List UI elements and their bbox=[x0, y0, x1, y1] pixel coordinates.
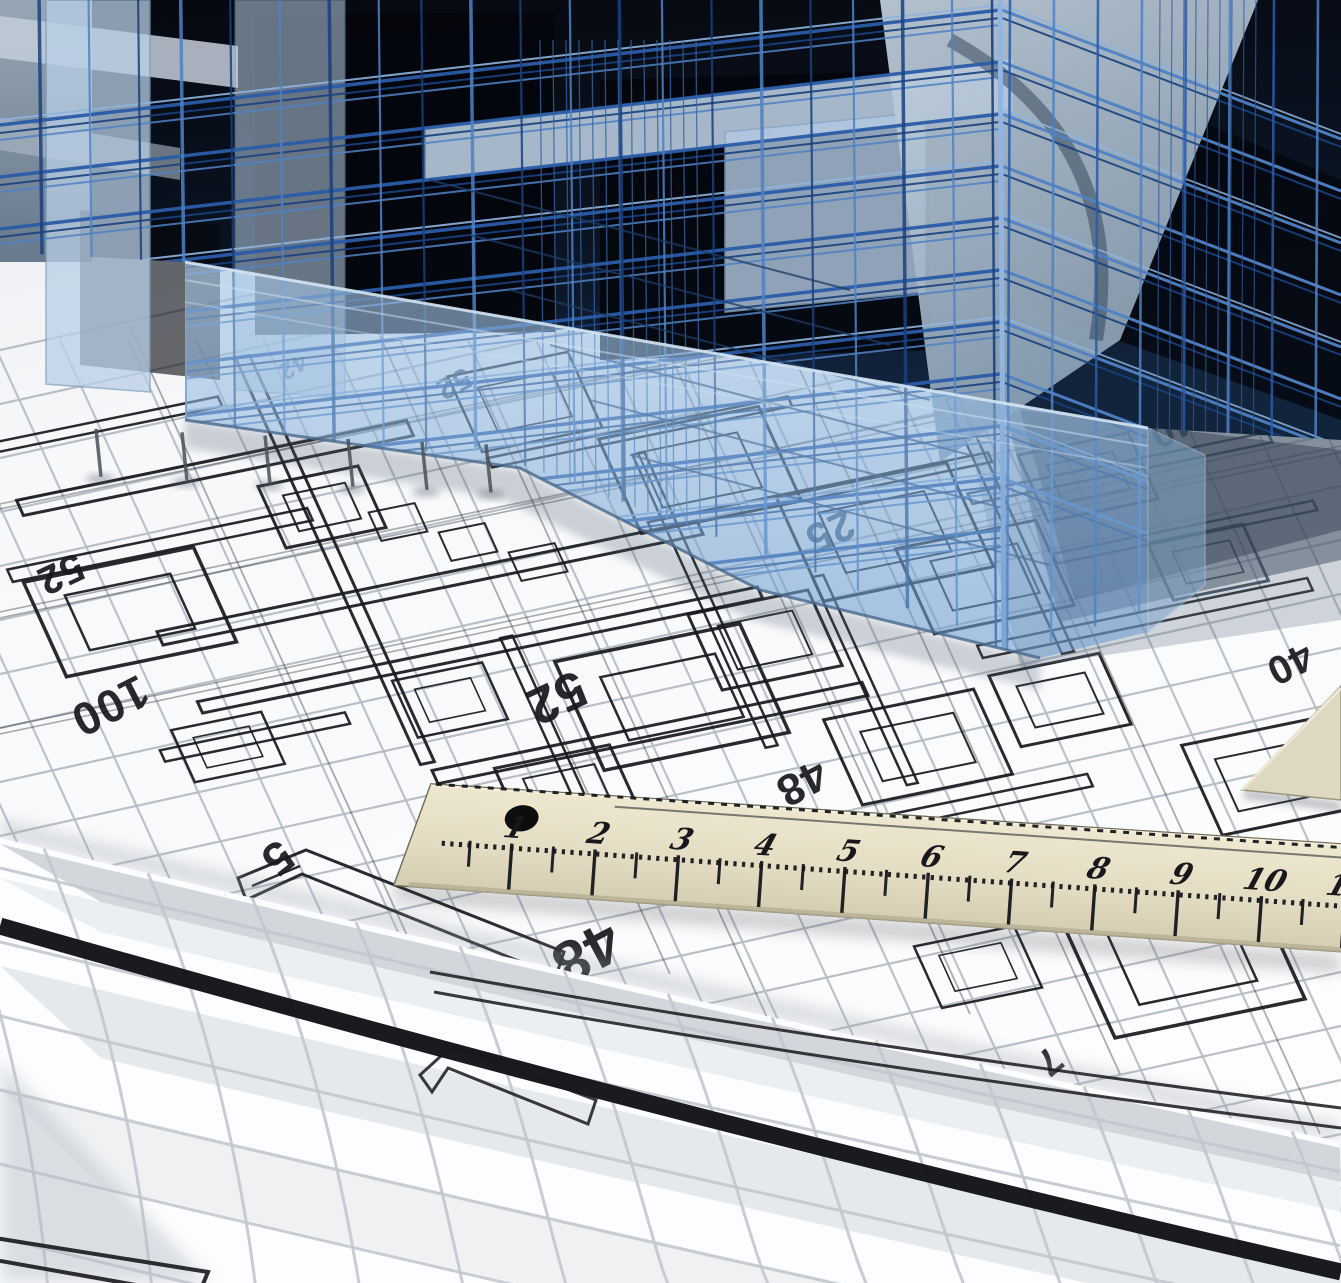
pillar-shadow bbox=[338, 485, 366, 493]
ruler-dot-tick bbox=[750, 862, 754, 867]
ruler-dot-tick bbox=[673, 857, 677, 862]
ruler-half-tick bbox=[552, 847, 554, 873]
ruler-half-tick bbox=[1301, 899, 1303, 925]
ruler-half-tick bbox=[1051, 882, 1053, 908]
ruler-half-tick bbox=[718, 858, 720, 884]
architectural-render-scene: 52100524840485740254252 1234567891011 bbox=[0, 0, 1341, 1283]
ruler-dot-tick bbox=[853, 870, 857, 875]
ruler-dot-tick bbox=[922, 874, 926, 879]
ruler-dot-tick bbox=[484, 844, 488, 849]
ruler-dot-tick bbox=[519, 846, 523, 851]
ruler-dot-tick bbox=[1308, 901, 1312, 906]
pillar-shadow bbox=[86, 475, 114, 483]
ruler-dot-tick bbox=[699, 859, 703, 864]
ruler-dot-tick bbox=[1025, 882, 1029, 887]
ruler-dot-tick bbox=[931, 875, 935, 880]
ruler-dot-tick bbox=[1334, 903, 1338, 908]
ruler-dot-tick bbox=[1076, 885, 1080, 890]
ruler-dot-tick bbox=[536, 847, 540, 852]
ruler-dot-tick bbox=[973, 878, 977, 883]
ruler-dot-tick bbox=[1119, 888, 1123, 893]
pillar-shadow bbox=[412, 488, 440, 496]
ruler-half-tick bbox=[968, 876, 970, 902]
ruler-half-tick bbox=[802, 864, 804, 890]
ruler-dot-tick bbox=[1128, 889, 1132, 894]
ruler-dot-tick bbox=[639, 855, 643, 860]
ruler-dot-tick bbox=[896, 873, 900, 878]
ruler-dot-tick bbox=[768, 864, 772, 869]
ruler-dot-tick bbox=[1265, 898, 1269, 903]
ruler-dot-tick bbox=[870, 871, 874, 876]
ruler-dot-tick bbox=[1196, 894, 1200, 899]
ruler-dot-tick bbox=[1248, 897, 1252, 902]
ruler-dot-tick bbox=[785, 865, 789, 870]
ruler-dot-tick bbox=[836, 868, 840, 873]
ruler-dot-tick bbox=[502, 845, 506, 850]
ruler-half-tick bbox=[1218, 893, 1220, 919]
ruler-dot-tick bbox=[1068, 885, 1072, 890]
ruler-dot-tick bbox=[605, 852, 609, 857]
ruler-dot-tick bbox=[733, 861, 737, 866]
ruler-dot-tick bbox=[476, 843, 480, 848]
ruler-half-tick bbox=[885, 870, 887, 896]
ruler-dot-tick bbox=[544, 848, 548, 853]
ruler-dot-tick bbox=[862, 870, 866, 875]
ruler-dot-tick bbox=[613, 853, 617, 858]
ruler-dot-tick bbox=[622, 853, 626, 858]
ruler-dot-tick bbox=[1231, 896, 1235, 901]
ruler-dot-tick bbox=[1102, 887, 1106, 892]
ruler-dot-tick bbox=[1188, 893, 1192, 898]
ruler-dot-tick bbox=[888, 872, 892, 877]
ruler-dot-tick bbox=[742, 862, 746, 867]
blueprint-scene-svg: 52100524840485740254252 1234567891011 bbox=[0, 0, 1341, 1283]
ruler-dot-tick bbox=[965, 877, 969, 882]
ruler-dot-tick bbox=[725, 861, 729, 866]
ruler-dot-tick bbox=[956, 877, 960, 882]
ruler-dot-tick bbox=[656, 856, 660, 861]
ruler-dot-tick bbox=[793, 865, 797, 870]
ruler-dot-tick bbox=[1274, 899, 1278, 904]
ruler-dot-tick bbox=[570, 850, 574, 855]
ruler-dot-tick bbox=[1171, 892, 1175, 897]
ruler-dot-tick bbox=[1016, 881, 1020, 886]
ruler-dot-tick bbox=[690, 858, 694, 863]
ruler-dot-tick bbox=[527, 847, 531, 852]
ruler-dot-tick bbox=[579, 850, 583, 855]
ruler-dot-tick bbox=[879, 871, 883, 876]
ruler-dot-tick bbox=[1214, 895, 1218, 900]
ruler-dot-tick bbox=[828, 868, 832, 873]
pillar-shadow bbox=[255, 482, 283, 490]
ruler-dot-tick bbox=[1222, 895, 1226, 900]
ruler-dot-tick bbox=[1162, 891, 1166, 896]
ruler-dot-tick bbox=[1282, 900, 1286, 905]
ruler-dot-tick bbox=[999, 880, 1003, 885]
ruler-dot-tick bbox=[913, 874, 917, 879]
ruler-dot-tick bbox=[1111, 888, 1115, 893]
ruler-dot-tick bbox=[939, 876, 943, 881]
ruler-dot-tick bbox=[1145, 890, 1149, 895]
ruler-dot-tick bbox=[1291, 900, 1295, 905]
ruler-dot-tick bbox=[442, 841, 446, 846]
ruler-half-tick bbox=[635, 852, 637, 878]
ruler-dot-tick bbox=[1154, 891, 1158, 896]
ruler-dot-tick bbox=[630, 854, 634, 859]
ruler-dot-tick bbox=[459, 842, 463, 847]
ruler-dot-tick bbox=[982, 879, 986, 884]
ruler-dot-tick bbox=[810, 867, 814, 872]
pillar-shadow bbox=[172, 478, 200, 486]
glass-panel bbox=[46, 0, 150, 392]
ruler-dot-tick bbox=[776, 864, 780, 869]
ruler-dot-tick bbox=[991, 879, 995, 884]
ruler-dot-tick bbox=[1325, 903, 1329, 908]
ruler-dot-tick bbox=[647, 855, 651, 860]
ruler-dot-tick bbox=[1042, 883, 1046, 888]
ruler-dot-tick bbox=[819, 867, 823, 872]
ruler-dot-tick bbox=[493, 844, 497, 849]
ruler-dot-tick bbox=[682, 858, 686, 863]
ruler-dot-tick bbox=[1085, 886, 1089, 891]
ruler-half-tick bbox=[1135, 887, 1137, 913]
ruler-dot-tick bbox=[587, 851, 591, 856]
ruler-dot-tick bbox=[1205, 894, 1209, 899]
ruler-dot-tick bbox=[1239, 897, 1243, 902]
ruler-dot-tick bbox=[1059, 884, 1063, 889]
ruler-dot-tick bbox=[1033, 882, 1037, 887]
ruler-dot-tick bbox=[1317, 902, 1321, 907]
ruler-dot-tick bbox=[905, 873, 909, 878]
ruler-dot-tick bbox=[948, 876, 952, 881]
ruler-dot-tick bbox=[665, 856, 669, 861]
ruler-dot-tick bbox=[1179, 892, 1183, 897]
ruler-dot-tick bbox=[707, 859, 711, 864]
ruler-half-tick bbox=[468, 841, 470, 867]
pillar-shadow bbox=[476, 490, 504, 498]
ruler-dot-tick bbox=[450, 841, 454, 846]
ruler-dot-tick bbox=[562, 849, 566, 854]
